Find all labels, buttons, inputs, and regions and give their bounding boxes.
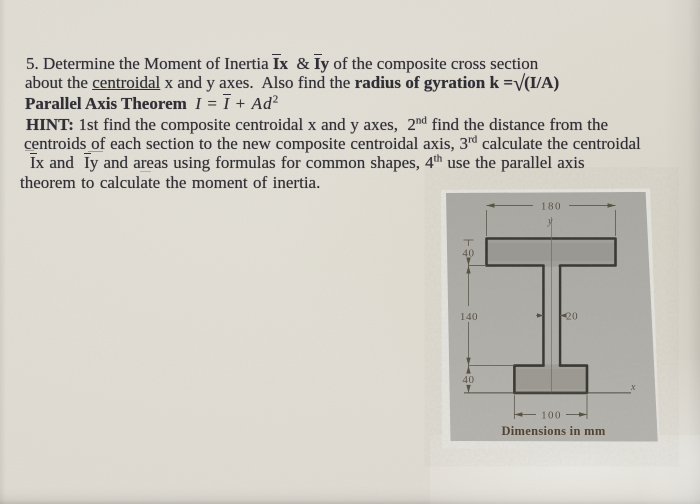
svg-text:20: 20 [566,311,578,323]
svg-text:x: x [630,382,636,393]
svg-text:140: 140 [460,311,478,323]
svg-text:100: 100 [541,410,562,422]
svg-text:40: 40 [462,374,474,386]
svg-text:y: y [547,216,553,227]
svg-text:180: 180 [541,201,562,213]
svg-text:Dimensions in mm: Dimensions in mm [501,424,605,438]
svg-text:40: 40 [462,248,474,260]
